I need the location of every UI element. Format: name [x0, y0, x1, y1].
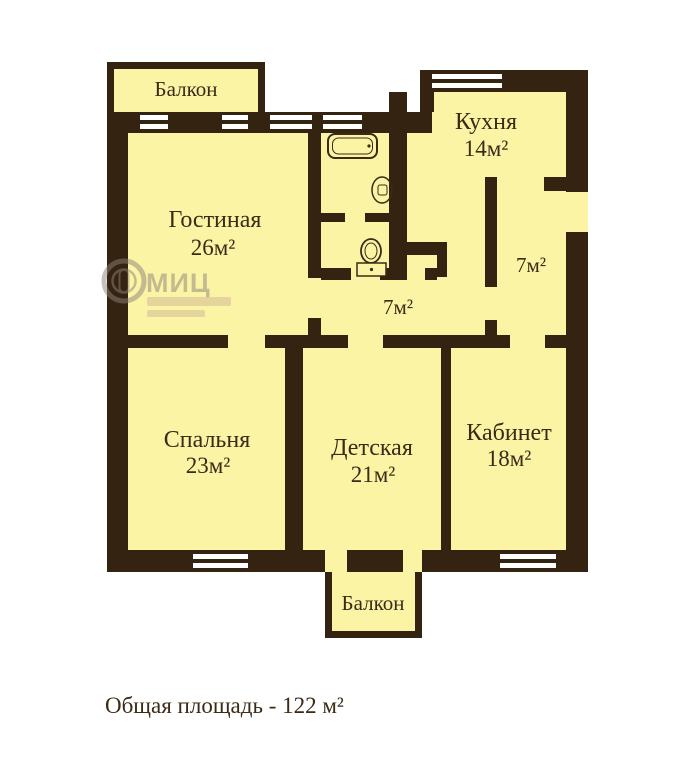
- nursery-label: Детская: [331, 435, 413, 461]
- wall-segment: [566, 70, 588, 192]
- wall-segment: [325, 572, 332, 638]
- living-room-label: Гостиная: [169, 207, 262, 233]
- floor-plan: Балкон Гостиная 26м² Кухня 14м² 7м² 7м² …: [0, 0, 696, 768]
- wall-segment: [415, 572, 422, 638]
- window: [193, 554, 248, 559]
- wall-segment: [285, 348, 303, 550]
- wall-segment: [545, 335, 566, 348]
- wall-segment: [383, 335, 510, 348]
- wall-segment: [485, 177, 497, 287]
- bedroom-label: Спальня: [164, 427, 251, 453]
- wall-segment: [437, 255, 447, 277]
- wall-segment: [258, 62, 265, 115]
- window: [140, 124, 168, 129]
- living-room-area: 26м²: [191, 235, 236, 260]
- window: [222, 115, 248, 120]
- office-label: Кабинет: [466, 420, 552, 446]
- wall-segment: [365, 213, 407, 222]
- corridor-area: 7м²: [383, 295, 413, 319]
- wall-segment: [321, 268, 351, 280]
- entry-hall-area: 7м²: [516, 253, 546, 277]
- watermark-brand: МИЦ: [146, 268, 211, 298]
- kitchen-label: Кухня: [455, 109, 517, 135]
- nursery-area: 21м²: [351, 462, 396, 487]
- floor-plan-page: Балкон Гостиная 26м² Кухня 14м² 7м² 7м² …: [0, 0, 696, 768]
- wall-segment: [107, 550, 588, 572]
- window: [323, 115, 362, 120]
- total-area-caption: Общая площадь - 122 м²: [105, 693, 344, 718]
- wall-segment: [441, 348, 451, 550]
- watermark-subtext-line: [147, 310, 205, 317]
- window: [432, 83, 502, 88]
- door-opening: [403, 550, 422, 572]
- wall-segment: [398, 242, 447, 255]
- window: [500, 563, 556, 568]
- wall-segment: [425, 268, 437, 280]
- wall-segment: [544, 177, 566, 191]
- kitchen-area: 14м²: [464, 136, 509, 161]
- wall-segment: [566, 232, 588, 572]
- wall-segment: [107, 62, 265, 69]
- window: [432, 74, 502, 79]
- wall-segment: [128, 335, 228, 348]
- window: [140, 115, 168, 120]
- office-area: 18м²: [487, 446, 532, 471]
- window: [270, 124, 312, 129]
- window: [193, 563, 248, 568]
- wall-segment: [420, 92, 434, 112]
- balcony-top-label: Балкон: [155, 77, 218, 101]
- wall-segment: [325, 631, 422, 638]
- wall-segment: [308, 133, 321, 278]
- window: [323, 124, 362, 129]
- wall-segment: [265, 335, 348, 348]
- balcony-bottom-label: Балкон: [342, 591, 405, 615]
- window: [270, 115, 312, 120]
- wall-segment: [107, 62, 114, 115]
- window: [222, 124, 248, 129]
- wall-segment: [321, 213, 345, 222]
- window: [500, 554, 556, 559]
- bedroom-area: 23м²: [186, 453, 231, 478]
- wall-segment: [107, 112, 128, 572]
- watermark-subtext-line: [147, 297, 231, 306]
- wall-segment: [420, 70, 588, 92]
- door-opening: [325, 550, 347, 572]
